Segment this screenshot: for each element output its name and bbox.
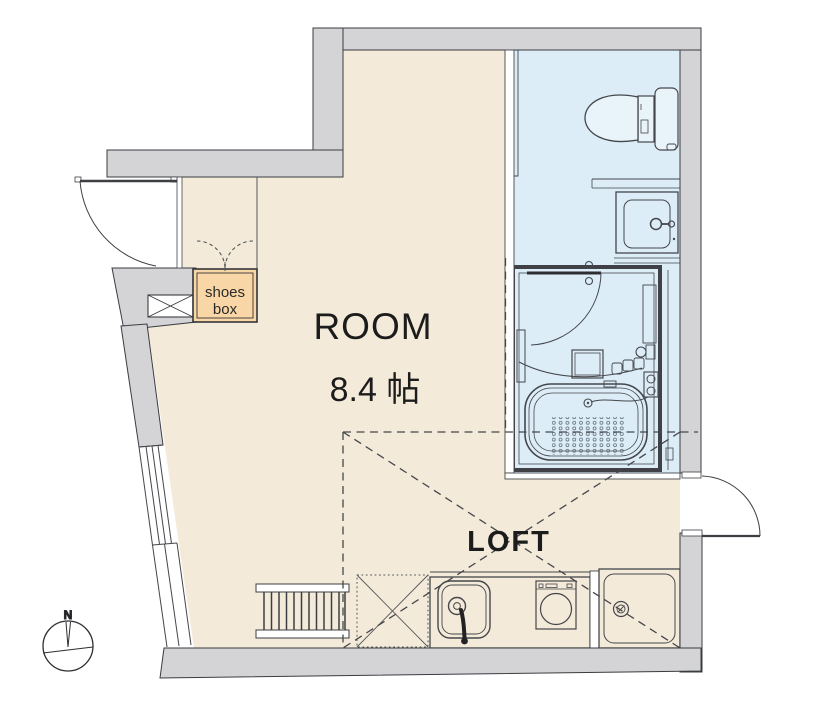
entry-door-frame (177, 177, 182, 268)
shoes-box-label-line1: shoes (205, 284, 245, 301)
compass-icon: N (43, 608, 93, 671)
compass-north-label: N (64, 608, 73, 622)
wall-right-upper (680, 50, 701, 473)
counter-end-panel (590, 571, 599, 648)
side-door (682, 472, 760, 536)
loft-label: LOFT (467, 526, 551, 558)
wall-bottom (160, 648, 701, 678)
wall-entry-lintel (107, 150, 343, 177)
floor-plan: N ROOM 8.4 帖 LOFT shoes box (0, 0, 816, 720)
room-area-label: 8.4 帖 (330, 371, 421, 409)
wall-top (313, 28, 701, 50)
room-name-label: ROOM (313, 306, 432, 347)
entrance-door-swing (80, 181, 156, 266)
shoes-box-label-line2: box (213, 301, 238, 318)
entrance-door (75, 177, 177, 266)
side-door-swing (702, 476, 760, 536)
pipe-space (148, 295, 193, 317)
